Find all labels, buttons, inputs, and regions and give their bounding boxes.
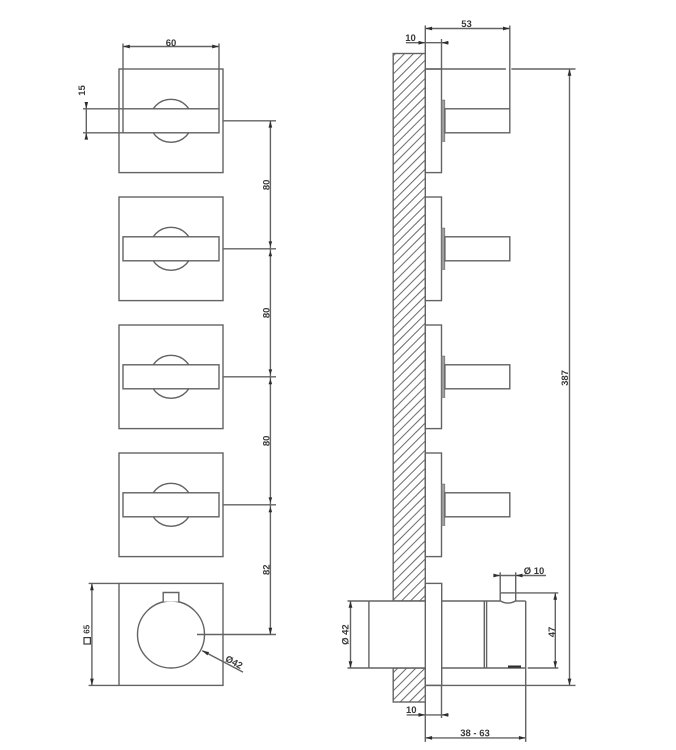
svg-text:Ø 10: Ø 10 [524,566,545,577]
svg-text:53: 53 [461,19,472,30]
svg-text:38 - 63: 38 - 63 [460,728,490,739]
svg-text:Ø 42: Ø 42 [341,624,352,645]
svg-text:387: 387 [560,370,571,386]
svg-text:15: 15 [77,85,88,96]
svg-text:80: 80 [262,180,273,191]
svg-text:60: 60 [166,38,177,49]
svg-text:80: 80 [262,308,273,319]
svg-text:82: 82 [262,564,273,575]
svg-text:65: 65 [83,624,92,633]
svg-text:10: 10 [405,33,416,44]
svg-text:10: 10 [406,705,417,716]
svg-text:80: 80 [262,436,273,447]
svg-text:47: 47 [547,627,558,638]
